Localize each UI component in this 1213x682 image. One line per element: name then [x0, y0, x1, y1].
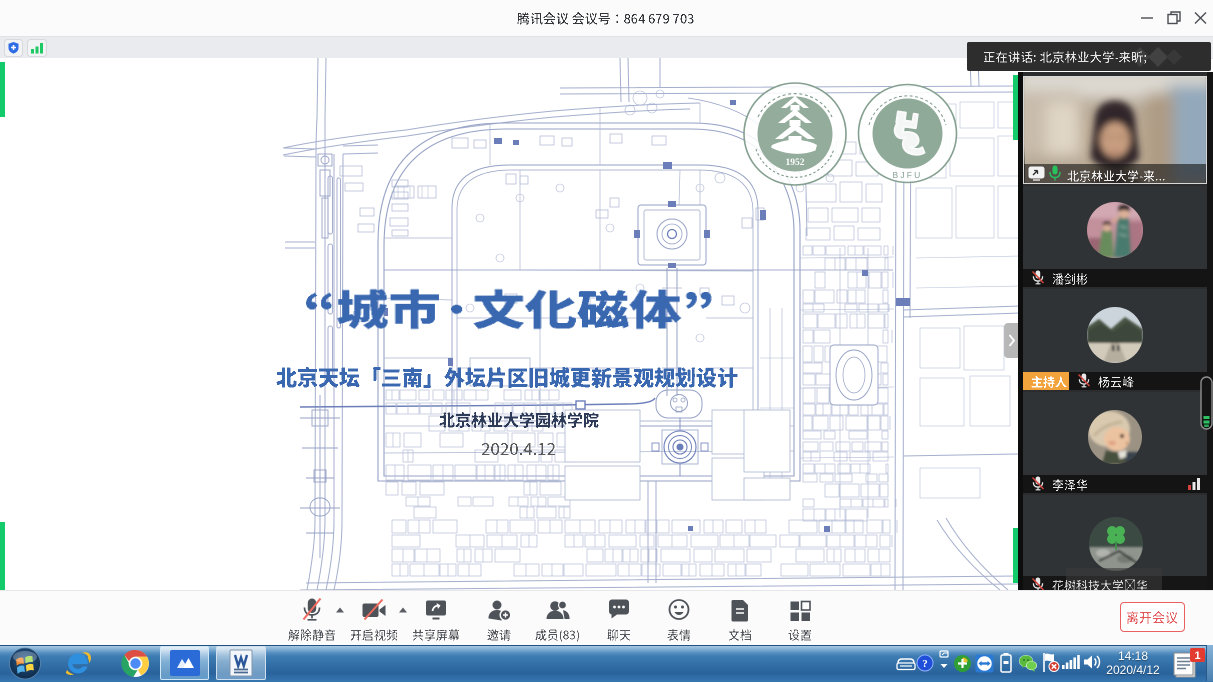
- svg-text:?: ?: [922, 658, 928, 670]
- svg-text:1: 1: [1194, 650, 1200, 662]
- svg-text:BJFU: BJFU: [892, 170, 922, 180]
- svg-text:1952: 1952: [786, 158, 805, 168]
